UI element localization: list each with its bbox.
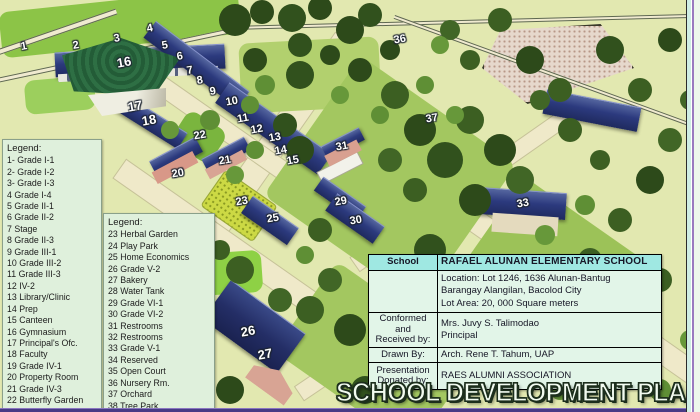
legend-item: 1- Grade I-1 (7, 155, 99, 166)
map-marker-20: 20 (171, 168, 185, 181)
legend-panel-middle: Legend: 23 Herbal Garden 24 Play Park 25… (103, 213, 215, 411)
table-row-drawn-by: Drawn By: Arch. Rene T. Tahum, UAP (369, 348, 661, 363)
legend-item: 31 Restrooms (108, 321, 212, 332)
legend-item: 33 Grade V-1 (108, 343, 212, 354)
map-marker-26: 26 (240, 323, 257, 338)
legend-item: 37 Orchard (108, 389, 212, 400)
row-label: Drawn By: (369, 348, 438, 362)
map-marker-11: 11 (236, 113, 249, 126)
legend-title: Legend: (108, 217, 212, 228)
legend-item: 19 Grade IV-1 (7, 361, 99, 372)
map-marker-22: 22 (193, 130, 207, 143)
legend-item: 8 Grade II-3 (7, 235, 99, 246)
legend-item: 15 Canteen (7, 315, 99, 326)
map-marker-10: 10 (225, 96, 239, 109)
map-marker-15: 15 (286, 155, 300, 168)
frame-border-right (694, 0, 700, 412)
legend-item: 32 Restrooms (108, 332, 212, 343)
legend-item: 3- Grade I-3 (7, 178, 99, 189)
legend-title: Legend: (7, 143, 99, 154)
map-marker-23: 23 (235, 196, 249, 209)
map-marker-25: 25 (266, 213, 280, 226)
legend-item: 5 Grade II-1 (7, 201, 99, 212)
map-marker-16: 16 (116, 54, 133, 69)
map-marker-18: 18 (141, 112, 158, 127)
legend-panel-left: Legend: 1- Grade I-1 2- Grade I-2 3- Gra… (2, 139, 102, 410)
school-info-table: School RAFAEL ALUNAN ELEMENTARY SCHOOL L… (368, 254, 662, 390)
map-marker-17: 17 (127, 98, 144, 113)
map-marker-30: 30 (349, 215, 363, 228)
legend-item: 13 Library/Clinic (7, 292, 99, 303)
tree-cluster-mid (381, 81, 409, 109)
legend-item: 34 Reserved (108, 355, 212, 366)
legend-item: 25 Home Economics (108, 252, 212, 263)
map-marker-33: 33 (516, 198, 530, 211)
legend-item: 35 Open Court (108, 366, 212, 377)
legend-item: 4 Grade I-4 (7, 190, 99, 201)
row-label (369, 271, 438, 312)
legend-item: 10 Grade III-2 (7, 258, 99, 269)
legend-item: 17 Principal's Ofc. (7, 338, 99, 349)
legend-item: 11 Grade III-3 (7, 269, 99, 280)
legend-item: 26 Grade V-2 (108, 264, 212, 275)
legend-item: 29 Grade VI-1 (108, 298, 212, 309)
legend-item: 2- Grade I-2 (7, 167, 99, 178)
legend-item: 20 Property Room (7, 372, 99, 383)
school-development-plan-image: 1 2 3 4 5 6 7 8 9 10 11 12 13 14 15 16 1… (0, 0, 700, 412)
legend-item: 12 IV-2 (7, 281, 99, 292)
row-label: School (369, 255, 438, 270)
location-value: Location: Lot 1246, 1636 Alunan-Bantug B… (438, 271, 661, 312)
map-marker-37: 37 (425, 113, 439, 126)
legend-item: 22 Butterfly Garden (7, 395, 99, 406)
row-label: Conformed and Received by: (369, 313, 438, 347)
legend-item: 6 Grade II-2 (7, 212, 99, 223)
tree-cluster-light (255, 75, 275, 95)
legend-item: 27 Bakery (108, 275, 212, 286)
tree-cluster-dark (219, 4, 251, 36)
map-marker-21: 21 (218, 155, 232, 168)
map-marker-36: 36 (393, 34, 407, 47)
conformed-value: Mrs. Juvy S. Talimodao Principal (438, 313, 661, 347)
table-row-location: Location: Lot 1246, 1636 Alunan-Bantug B… (369, 271, 661, 313)
table-row-school: School RAFAEL ALUNAN ELEMENTARY SCHOOL (369, 255, 661, 271)
legend-item: 36 Nursery Rm. (108, 378, 212, 389)
drawn-by-value: Arch. Rene T. Tahum, UAP (438, 348, 661, 362)
map-marker-29: 29 (334, 196, 348, 209)
legend-item: 16 Gymnasium (7, 327, 99, 338)
legend-item: 18 Faculty (7, 349, 99, 360)
map-marker-12: 12 (250, 124, 264, 137)
plan-title-banner: SCHOOL DEVELOPMENT PLAN (336, 377, 700, 408)
map-marker-13: 13 (268, 132, 282, 145)
legend-item: 14 Prep (7, 304, 99, 315)
map-marker-27: 27 (257, 346, 274, 361)
school-name: RAFAEL ALUNAN ELEMENTARY SCHOOL (438, 255, 661, 270)
boundary-line (230, 14, 690, 30)
legend-item: 30 Grade VI-2 (108, 309, 212, 320)
legend-item: 28 Water Tank (108, 286, 212, 297)
map-marker-31: 31 (335, 141, 349, 154)
legend-item: 7 Stage (7, 224, 99, 235)
legend-item: 24 Play Park (108, 241, 212, 252)
frame-border-bottom (0, 408, 700, 412)
legend-item: 23 Herbal Garden (108, 229, 212, 240)
legend-item: 21 Grade IV-3 (7, 384, 99, 395)
legend-item: 9 Grade III-1 (7, 247, 99, 258)
table-row-conformed: Conformed and Received by: Mrs. Juvy S. … (369, 313, 661, 348)
